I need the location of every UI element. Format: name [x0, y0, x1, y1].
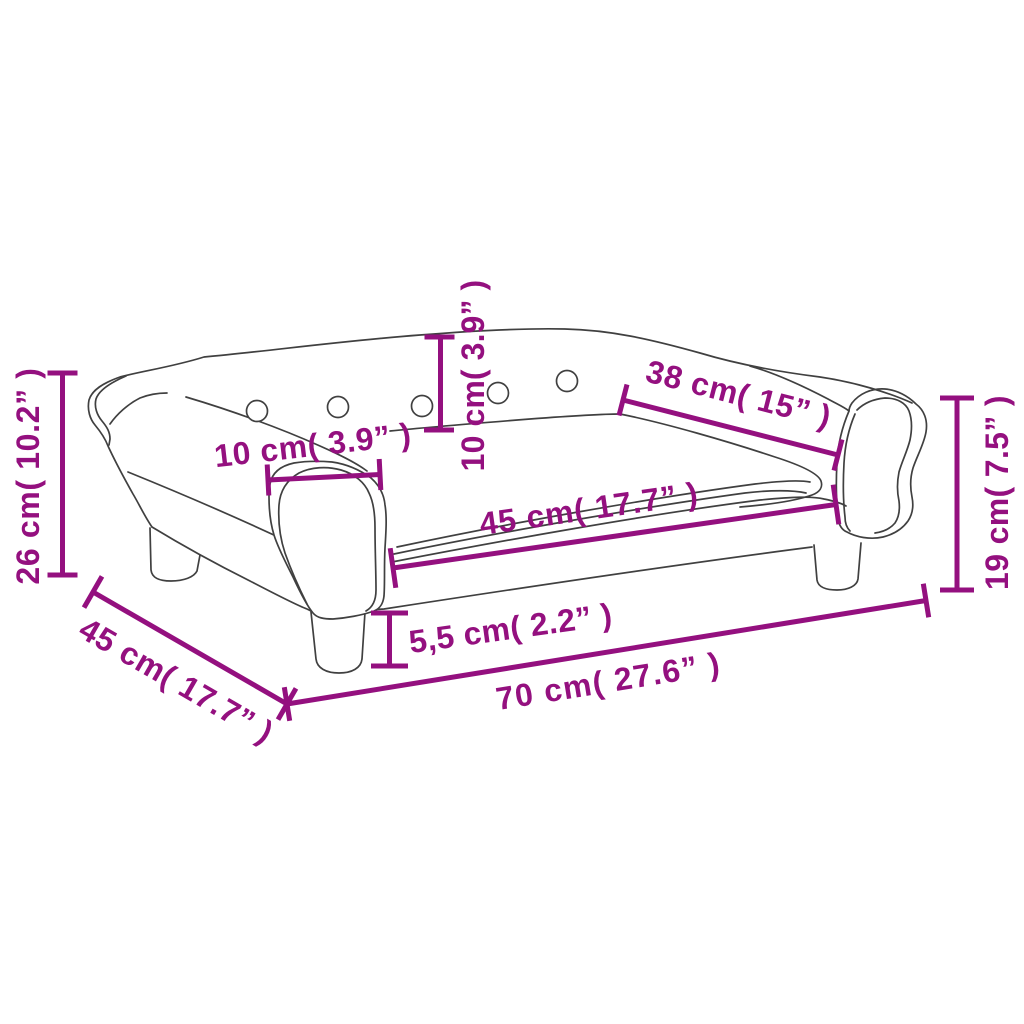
svg-text:10 cm( 3.9” ): 10 cm( 3.9” ): [455, 280, 491, 472]
svg-text:26 cm( 10.2” ): 26 cm( 10.2” ): [10, 367, 46, 584]
svg-text:19 cm( 7.5” ): 19 cm( 7.5” ): [979, 395, 1015, 590]
